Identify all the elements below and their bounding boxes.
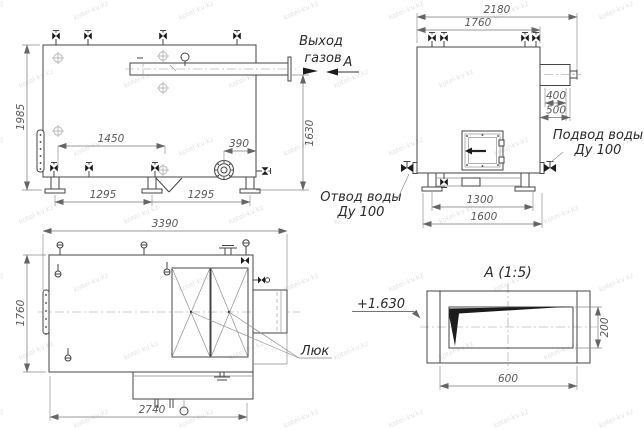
gauge-icon — [181, 53, 189, 61]
svg-text:kotel-kv.kz: kotel-kv.kz — [0, 407, 5, 430]
dim-top-span-1450: 1450 — [98, 133, 125, 145]
svg-text:kotel-kv.kz: kotel-kv.kz — [388, 135, 426, 158]
water-supply-label-line1: Подвод воды — [553, 128, 643, 143]
weld-seam — [449, 307, 572, 347]
water-supply-valve — [540, 162, 556, 174]
svg-text:kotel-kv.kz: kotel-kv.kz — [388, 407, 426, 430]
elevation-annotation: +1.630 — [352, 297, 420, 318]
dim-base-outer-1600: 1600 — [471, 211, 498, 223]
drawing-canvas: kotel-kv.kzkotel-kv.kzkotel-kv.kzkotel-k… — [0, 0, 644, 430]
water-return-label-line1: Отвод воды — [320, 190, 401, 205]
dim-width-1760: 1760 — [15, 299, 27, 326]
svg-text:kotel-kv.kz: kotel-kv.kz — [73, 0, 111, 22]
svg-text:kotel-kv.kz: kotel-kv.kz — [228, 203, 266, 226]
svg-text:kotel-kv.kz: kotel-kv.kz — [438, 203, 476, 226]
svg-text:kotel-kv.kz: kotel-kv.kz — [0, 271, 5, 294]
svg-text:kotel-kv.kz: kotel-kv.kz — [283, 271, 321, 294]
svg-text:kotel-kv.kz: kotel-kv.kz — [438, 67, 476, 90]
door-hinge-icon — [499, 157, 504, 163]
svg-text:kotel-kv.kz: kotel-kv.kz — [18, 203, 56, 226]
top-safety-valves — [52, 31, 241, 46]
side-view: 1985 1630 1450 390 1295 1295 — [15, 31, 316, 207]
dim-burner-offset-390: 390 — [229, 138, 249, 150]
boiler-body-end — [417, 47, 540, 173]
dim-length-3390: 3390 — [152, 218, 179, 230]
plan-view: 3390 1760 2740 Люк — [15, 218, 332, 421]
elevation-mark: +1.630 — [357, 297, 405, 312]
supports — [45, 177, 260, 193]
dim-base-inner-1300: 1300 — [467, 194, 494, 206]
end-view: 2180 1760 400 500 1300 1600 Подвод воды … — [320, 4, 643, 228]
burner-flange — [215, 161, 234, 180]
svg-text:kotel-kv.kz: kotel-kv.kz — [0, 135, 5, 158]
gas-outlet-label-line2: газов — [304, 51, 341, 66]
hatches — [172, 268, 248, 357]
detail-title: А (1:5) — [483, 265, 531, 281]
svg-text:kotel-kv.kz: kotel-kv.kz — [543, 203, 581, 226]
dim-overall-2180: 2180 — [484, 4, 511, 16]
dim-height-1985: 1985 — [15, 103, 27, 130]
svg-text:kotel-kv.kz: kotel-kv.kz — [388, 0, 426, 22]
svg-text:kotel-kv.kz: kotel-kv.kz — [178, 135, 216, 158]
svg-text:kotel-kv.kz: kotel-kv.kz — [73, 271, 111, 294]
rear-flange-plan — [43, 290, 49, 335]
section-arrow-icon — [326, 69, 338, 76]
svg-text:kotel-kv.kz: kotel-kv.kz — [493, 135, 531, 158]
water-labels: Подвод воды Ду 100 Отвод воды Ду 100 — [320, 128, 643, 220]
door-hinge-icon — [499, 140, 504, 146]
boiler-body-plan — [49, 255, 253, 372]
gas-duct-plan — [253, 290, 287, 364]
svg-text:kotel-kv.kz: kotel-kv.kz — [228, 339, 266, 362]
base-frame-end — [422, 173, 535, 191]
top-fittings-plan — [57, 240, 249, 264]
svg-text:kotel-kv.kz: kotel-kv.kz — [283, 407, 321, 430]
svg-text:kotel-kv.kz: kotel-kv.kz — [598, 271, 636, 294]
water-return-valve — [401, 162, 417, 174]
svg-text:kotel-kv.kz: kotel-kv.kz — [598, 0, 636, 22]
dim-detail-width-600: 600 — [498, 373, 518, 385]
svg-text:kotel-kv.kz: kotel-kv.kz — [493, 407, 531, 430]
svg-text:kotel-kv.kz: kotel-kv.kz — [178, 407, 216, 430]
detail-view: А (1:5) +1.630 200 600 — [352, 265, 611, 390]
dim-base-length-2740: 2740 — [139, 404, 166, 416]
hatch-label: Люк — [300, 344, 330, 359]
water-supply-label-line2: Ду 100 — [574, 143, 622, 158]
technical-drawing: kotel-kv.kzkotel-kv.kzkotel-kv.kzkotel-k… — [0, 0, 644, 430]
dim-duct-span-500: 500 — [546, 105, 566, 117]
svg-text:kotel-kv.kz: kotel-kv.kz — [333, 67, 371, 90]
dim-detail-height-200: 200 — [599, 317, 611, 337]
svg-text:kotel-kv.kz: kotel-kv.kz — [123, 339, 161, 362]
dim-body-1760: 1760 — [465, 17, 492, 29]
flow-arrow-icon — [303, 68, 318, 75]
svg-text:kotel-kv.kz: kotel-kv.kz — [73, 407, 111, 430]
svg-text:kotel-kv.kz: kotel-kv.kz — [283, 0, 321, 22]
rear-flange — [37, 130, 44, 172]
dim-duct-400: 400 — [546, 90, 566, 102]
svg-text:kotel-kv.kz: kotel-kv.kz — [543, 339, 581, 362]
dim-support-left-1295: 1295 — [90, 189, 117, 201]
svg-text:kotel-kv.kz: kotel-kv.kz — [333, 339, 371, 362]
gas-outlet-annotation: Выход газов — [299, 34, 343, 75]
side-valve-plan — [253, 277, 270, 284]
svg-text:kotel-kv.kz: kotel-kv.kz — [178, 271, 216, 294]
svg-text:kotel-kv.kz: kotel-kv.kz — [598, 407, 636, 430]
svg-text:kotel-kv.kz: kotel-kv.kz — [18, 67, 56, 90]
water-return-label-line2: Ду 100 — [337, 205, 385, 220]
svg-text:kotel-kv.kz: kotel-kv.kz — [438, 339, 476, 362]
top-safety-valves-end — [428, 33, 540, 48]
svg-text:kotel-kv.kz: kotel-kv.kz — [0, 0, 5, 22]
section-letter: А — [343, 55, 353, 70]
dim-support-right-1295: 1295 — [188, 189, 215, 201]
dim-flue-height-1630: 1630 — [304, 119, 316, 146]
gas-outlet-label-line1: Выход — [299, 34, 343, 49]
svg-text:kotel-kv.kz: kotel-kv.kz — [178, 0, 216, 22]
svg-text:kotel-kv.kz: kotel-kv.kz — [388, 271, 426, 294]
